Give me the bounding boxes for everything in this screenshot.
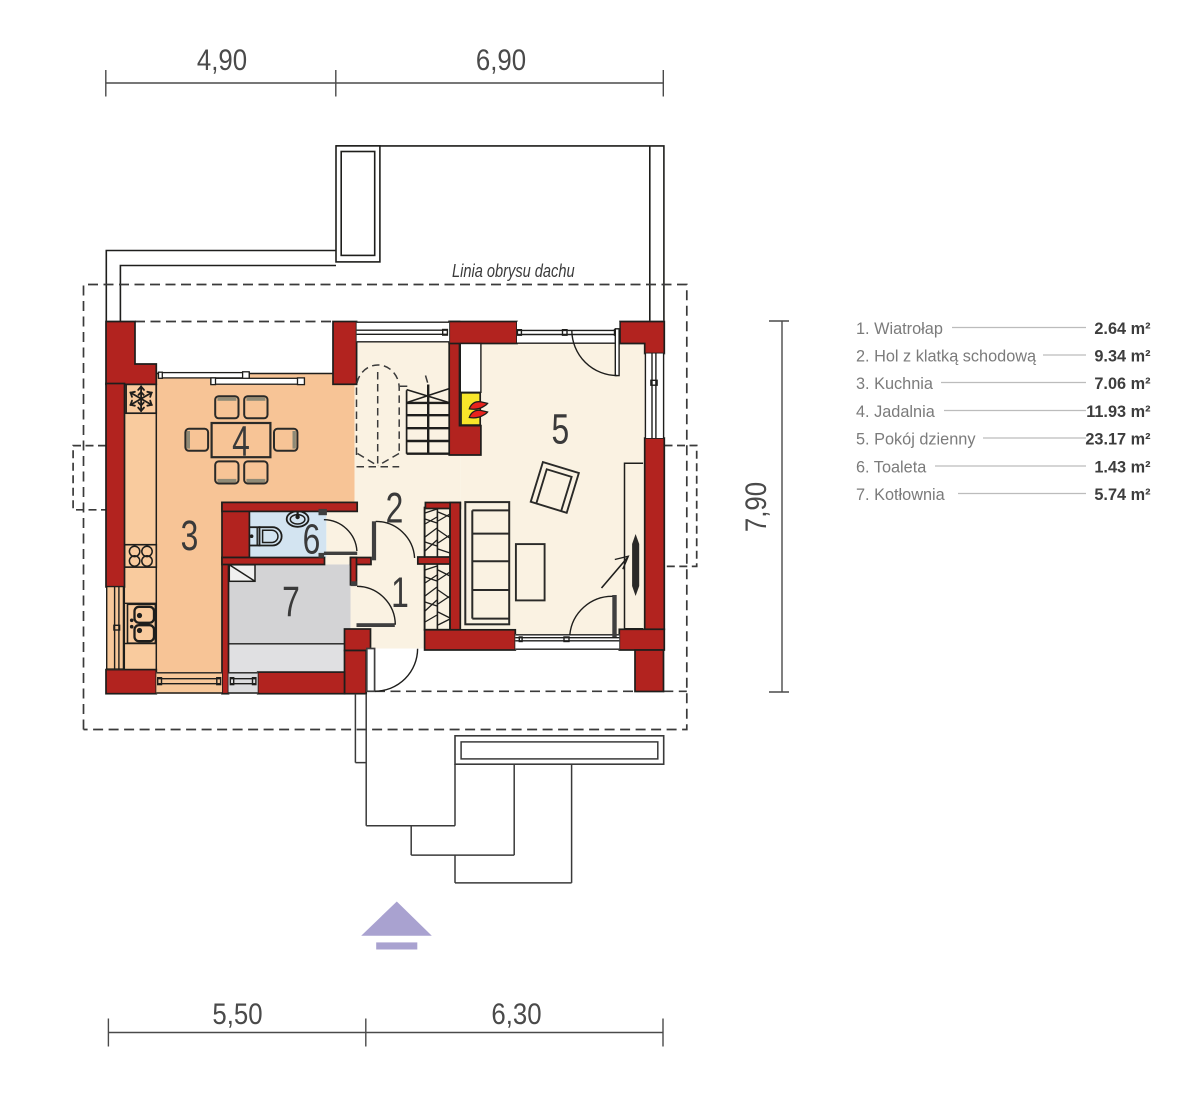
svg-text:6: 6	[303, 516, 321, 564]
svg-text:9.34 m²: 9.34 m²	[1094, 348, 1151, 366]
svg-text:1: 1	[391, 569, 409, 617]
svg-text:1.43 m²: 1.43 m²	[1094, 459, 1151, 477]
svg-text:5: 5	[551, 406, 569, 454]
svg-text:6,90: 6,90	[476, 43, 526, 76]
svg-text:3: 3	[181, 512, 199, 560]
svg-text:6,30: 6,30	[491, 997, 541, 1030]
svg-text:Linia obrysu dachu: Linia obrysu dachu	[452, 260, 575, 281]
svg-text:2. Hol z klatką schodową: 2. Hol z klatką schodową	[856, 348, 1037, 366]
svg-text:5.74 m²: 5.74 m²	[1094, 486, 1151, 504]
svg-text:5,50: 5,50	[212, 997, 262, 1030]
svg-text:11.93 m²: 11.93 m²	[1086, 403, 1151, 421]
svg-text:2.64 m²: 2.64 m²	[1094, 320, 1151, 338]
svg-text:6. Toaleta: 6. Toaleta	[856, 459, 927, 477]
svg-text:3. Kuchnia: 3. Kuchnia	[856, 375, 934, 393]
svg-text:1. Wiatrołap: 1. Wiatrołap	[856, 320, 943, 338]
svg-text:7: 7	[282, 578, 300, 626]
svg-text:2: 2	[386, 485, 404, 533]
svg-text:7,90: 7,90	[739, 482, 772, 532]
svg-text:7.06 m²: 7.06 m²	[1094, 375, 1151, 393]
svg-text:4,90: 4,90	[197, 43, 247, 76]
svg-text:7. Kotłownia: 7. Kotłownia	[856, 486, 946, 504]
svg-text:23.17 m²: 23.17 m²	[1085, 431, 1151, 449]
svg-text:4. Jadalnia: 4. Jadalnia	[856, 403, 936, 421]
svg-text:4: 4	[232, 418, 250, 466]
svg-text:5. Pokój dzienny: 5. Pokój dzienny	[856, 431, 976, 449]
